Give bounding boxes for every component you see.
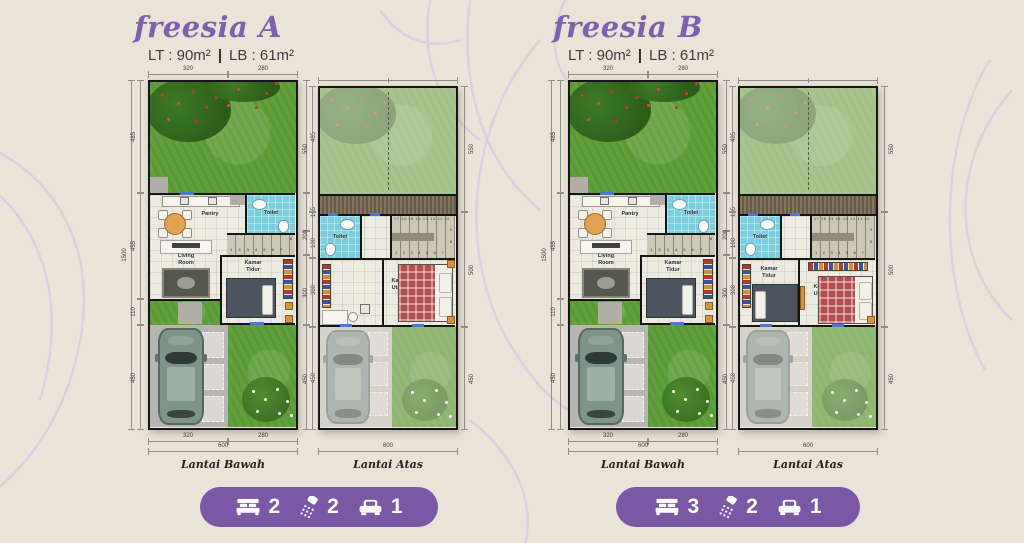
dimension-line: 450 [732,327,733,430]
bed-icon [235,497,261,517]
dimension-label: 455 [131,241,137,251]
dimension-line: 320 [568,74,648,75]
nightstand [867,316,875,324]
stair-step-number-8: 8 [710,237,712,241]
dimension-label: 320 [603,66,613,72]
toilet-bowl [698,220,709,233]
living-room-rug [582,268,630,298]
unit-freesia-b: freesia B LT : 90m²|LB : 61m² Toilet 1 2… [420,0,932,543]
pantry-label: Pantry [605,211,655,218]
dimension-line: 485 [140,80,141,193]
dimension-label: 450 [723,373,729,383]
shower-icon [298,496,320,518]
wall [245,195,247,235]
dimension-label: 550 [723,144,729,154]
dimension-label: 600 [638,443,648,449]
dimension-label: 600 [803,443,813,449]
nightstand [705,302,713,310]
dimension-line: 110 [560,299,561,325]
dimension-line: 450 [884,327,885,430]
door-panel [800,286,805,310]
roof-canopy [740,194,876,214]
dimension-line: 110 [140,299,141,325]
transparency-overlay [740,327,876,428]
dimension-label: 280 [678,433,688,439]
floor-plan-lantai-bawah: Toilet 1 2 3 4 5 6 7 8 Pantry Living Roo… [148,80,298,430]
wall [220,255,295,257]
unit-title: freesia B [548,10,708,44]
washbasin [340,219,355,230]
dimension-label: 455 [551,241,557,251]
bathroom-count: 2 [717,495,758,519]
wardrobe [742,264,751,308]
stair-step-number-9: 9 [870,229,872,233]
stair-step-number-8: 8 [290,237,292,241]
bed [646,278,696,318]
dimension-label: 280 [258,66,268,72]
back-garden [648,325,716,427]
dimension-line: 500 [884,212,885,327]
dimension-line: 165 [306,193,307,231]
floor-plan-lantai-bawah: Toilet 1 2 3 4 5 6 7 8 Pantry Living Roo… [568,80,718,430]
wall [390,216,392,260]
carport-count: 1 [357,495,403,519]
bedroom-count-value: 3 [687,495,699,519]
unit-spec: LT : 90m²|LB : 61m² [148,47,294,64]
living-room-label: Living Room [592,253,620,266]
stair-step-numbers: 1 2 3 4 5 6 7 [230,248,285,252]
dimension-line: 600 [568,451,718,452]
bed-icon [654,497,680,517]
dimension-line: 200 [312,212,313,258]
dimension-label: 485 [551,131,557,141]
wardrobe [808,262,868,271]
pillow [859,282,872,300]
car-top-view [158,328,204,425]
dimension-label: 550 [889,144,895,154]
pillow [755,291,766,319]
walkway-pad [178,302,202,324]
kamar-tidur-label: Kamar Tidur [660,260,686,273]
stair-step-numbers-upper: 17 16 15 14 13 12 11 10 [814,218,870,222]
dimension-label: 600 [218,443,228,449]
bed [752,284,798,322]
spec-divider: | [218,47,222,64]
paving-pad [622,364,644,390]
wall [740,258,875,260]
stair-step-numbers: 1 2 3 4 5 6 7 [650,248,705,252]
dimension-line: 450 [312,327,313,430]
kamar-tidur-label: Kamar Tidur [240,260,266,273]
bed [226,278,276,318]
wall [220,255,222,325]
dimension-line: 455 [140,193,141,299]
toilet-label: Toilet [742,234,778,241]
carport-count: 1 [776,495,822,519]
dimension-line: 280 [228,74,298,75]
spec-lb: LB : 61m² [229,47,294,64]
master-bed [818,276,873,324]
entry-pad [150,177,168,193]
floor-caption-bawah: Lantai Bawah [568,458,718,471]
tv [172,243,200,248]
sink-appliance [208,197,217,205]
dimension-line: 550 [732,86,733,212]
dimension-tick [808,78,809,83]
pantry-label: Pantry [185,211,235,218]
spec-lb: LB : 61m² [649,47,714,64]
spec-lt: LT : 90m² [148,47,211,64]
dimension-line: 200 [732,212,733,258]
nightstand [285,302,293,310]
facilities-badge: 3 2 1 [616,487,860,527]
sink-appliance [628,197,637,205]
stove-appliance [180,197,189,205]
toilet-label: Toilet [250,210,292,217]
dimension-line: 485 [726,80,727,193]
nightstand [705,315,713,323]
dimension-line: 550 [312,86,313,212]
dimension-label: 500 [889,264,895,274]
wall [360,216,362,260]
dimension-line: 280 [228,441,298,442]
dimension-label: 110 [551,307,557,317]
wall [665,195,667,235]
chair [348,312,358,322]
entry-pad [570,177,588,193]
unit-spec: LT : 90m²|LB : 61m² [568,47,714,64]
wardrobe [283,259,293,299]
toilet-bowl [278,220,289,233]
dimension-label: 300 [303,287,309,297]
stair-step-numbers: 1 2 3 4 5 6 7 [815,251,866,255]
stair-step-number-8: 8 [870,241,872,245]
dimension-line: 165 [726,193,727,231]
bathroom-count: 2 [298,495,339,519]
toilet-bowl [745,243,756,256]
floor-caption-atas: Lantai Atas [738,458,878,471]
dimension-label: 550 [303,144,309,154]
living-room-rug [162,268,210,298]
dimension-label: 485 [131,131,137,141]
toilet-label: Toilet [670,210,712,217]
dimension-line: 320 [148,441,228,442]
washbasin [672,199,687,210]
dimension-label: 300 [723,287,729,297]
flower-bush [242,377,290,422]
washbasin [760,219,775,230]
pillow [262,285,273,315]
pantry-counter [582,196,660,207]
dimension-label: 320 [183,66,193,72]
brochure-page: { "page": { "background_color": "#eae3d8… [0,0,1024,543]
dimension-line: 600 [148,451,298,452]
paving-pad [202,364,224,390]
dimension-line: 550 [884,86,885,212]
dimension-label: 1500 [122,248,128,261]
bedroom-count: 3 [654,495,699,519]
carport-count-value: 1 [391,495,403,519]
dimension-line: 300 [312,258,313,327]
paving-pad [622,396,644,422]
floor-plan-lantai-atas: Toilet 17 16 15 14 13 12 11 10 9 8 1 2 3… [738,86,878,430]
wardrobe [322,264,331,308]
living-room-label: Living Room [172,253,200,266]
washbasin [252,199,267,210]
dimension-line: 485 [306,80,307,193]
plaid-blanket [819,277,855,323]
floor-caption-bawah: Lantai Bawah [148,458,298,471]
dining-table [584,213,606,235]
spec-divider: | [638,47,642,64]
dimension-label: 450 [889,373,895,383]
bathroom-count-value: 2 [746,495,758,519]
spec-lt: LT : 90m² [568,47,631,64]
bedroom-count: 2 [235,495,280,519]
facilities-badge: 2 2 1 [200,487,438,527]
paving-pad [202,396,224,422]
car-top-view [578,328,624,425]
dimension-label: 280 [678,66,688,72]
front-garden [570,82,716,193]
dimension-line: 600 [738,451,878,452]
dimension-label: 280 [258,433,268,439]
dimension-label: 450 [303,373,309,383]
wall [780,216,782,260]
dimension-line: 485 [560,80,561,193]
shower-icon [717,496,739,518]
dimension-tick [388,78,389,83]
carport-count-value: 1 [810,495,822,519]
pillow [682,285,693,315]
dimension-label: 320 [183,433,193,439]
walkway-pad [598,302,622,324]
flower-bush [662,377,710,422]
wall [382,260,384,325]
dimension-line: 320 [568,441,648,442]
wall [810,216,812,260]
dimension-label: 320 [603,433,613,439]
dimension-line: 455 [560,193,561,299]
dining-table [164,213,186,235]
front-garden [150,82,296,193]
desk [322,310,348,325]
wall [640,255,642,325]
dimension-label: 200 [303,230,309,240]
dimension-label: 200 [723,230,729,240]
dimension-line: 300 [732,258,733,327]
wardrobe [703,259,713,299]
pantry-counter [162,196,240,207]
boundary-dashed-line [388,92,389,190]
bathroom-count-value: 2 [327,495,339,519]
car-icon [357,498,384,517]
kamar-tidur-label: Kamar Tidur [756,266,782,279]
staircase: 1 2 3 4 5 6 7 8 [647,235,715,255]
dimension-line: 280 [648,441,718,442]
tv [592,243,620,248]
dimension-line: 280 [648,74,718,75]
dimension-label: 600 [383,443,393,449]
staircase: 17 16 15 14 13 12 11 10 9 8 1 2 3 4 5 6 … [812,216,875,258]
toilet-bowl [325,243,336,256]
boundary-dashed-line [808,92,809,190]
dimension-label: 450 [551,372,557,382]
staircase: 1 2 3 4 5 6 7 8 [227,235,295,255]
dimension-label: 450 [131,372,137,382]
dimension-line: 450 [140,325,141,430]
bedroom-count-value: 2 [268,495,280,519]
back-garden [228,325,296,427]
toilet-label: Toilet [322,234,358,241]
dimension-label: 110 [131,307,137,317]
stove-appliance [600,197,609,205]
dimension-line: 320 [148,74,228,75]
dimension-label: 1500 [542,248,548,261]
nightstand [285,315,293,323]
stand [360,304,370,314]
car-icon [776,498,803,517]
dimension-line: 450 [560,325,561,430]
stair-landing [812,233,854,241]
unit-title: freesia A [128,10,288,44]
wall [640,255,715,257]
